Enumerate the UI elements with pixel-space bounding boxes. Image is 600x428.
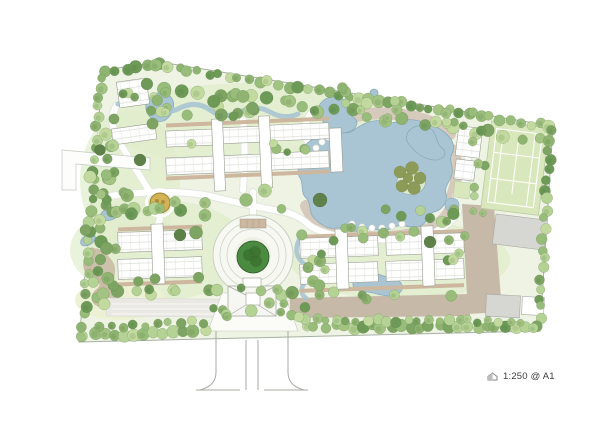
scale-note-text: 1:250 @ A1 [503, 371, 555, 382]
scale-note: 1:250 @ A1 [487, 371, 555, 382]
master-plan-drawing [0, 0, 600, 423]
master-plan-canvas [0, 0, 600, 423]
site-plan-page: { "meta": { "scale_note": "1:250 @ A1" }… [0, 0, 600, 423]
north-arrow-icon [487, 372, 498, 381]
